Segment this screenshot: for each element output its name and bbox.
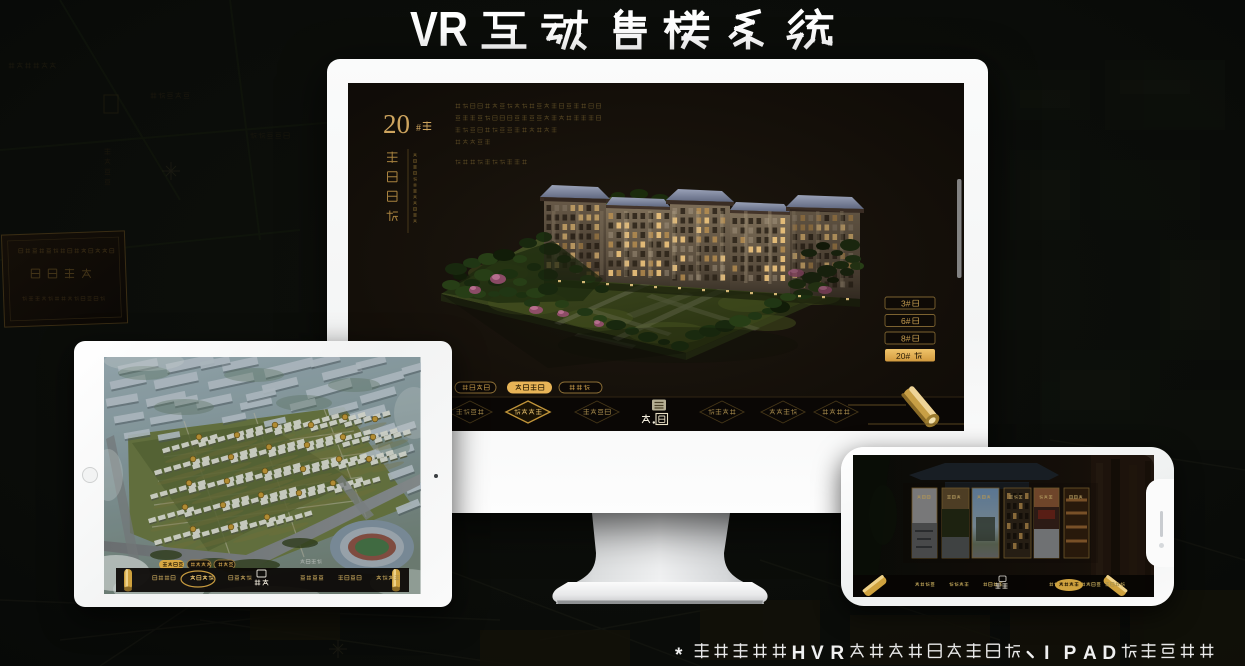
svg-text:A: A	[1083, 643, 1097, 664]
svg-text:P: P	[1064, 643, 1077, 664]
svg-text:D: D	[1102, 643, 1116, 664]
svg-text:V: V	[811, 643, 824, 664]
svg-text:#: #	[416, 123, 421, 134]
svg-text:20: 20	[383, 109, 410, 139]
svg-text:I: I	[1044, 643, 1049, 664]
svg-text:VR: VR	[410, 3, 468, 57]
svg-text:R: R	[830, 643, 844, 664]
svg-text:3#: 3#	[901, 299, 911, 309]
svg-text:8#: 8#	[901, 334, 911, 344]
svg-text:H: H	[792, 643, 806, 664]
svg-text:6#: 6#	[901, 316, 911, 326]
svg-text:*: *	[675, 645, 683, 666]
svg-text:20#: 20#	[896, 351, 910, 361]
